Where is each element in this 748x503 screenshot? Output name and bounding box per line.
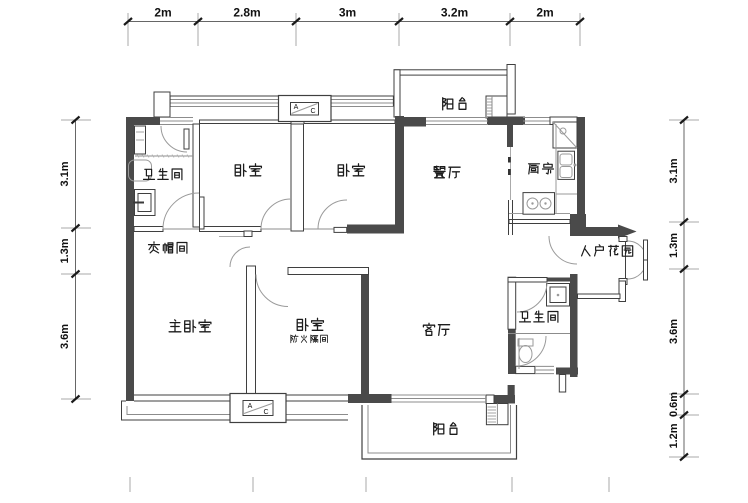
svg-text:2m: 2m: [154, 6, 171, 20]
svg-text:2.8m: 2.8m: [233, 6, 260, 20]
svg-text:3m: 3m: [339, 6, 356, 20]
svg-text:1.3m: 1.3m: [59, 238, 71, 263]
svg-text:2m: 2m: [536, 6, 553, 20]
svg-text:0.6m: 0.6m: [668, 392, 680, 417]
svg-text:A: A: [294, 104, 299, 111]
svg-text:3.2m: 3.2m: [441, 6, 468, 20]
svg-text:3.6m: 3.6m: [59, 324, 71, 349]
svg-text:A: A: [248, 403, 253, 410]
svg-text:3.1m: 3.1m: [668, 158, 680, 183]
svg-text:3.6m: 3.6m: [668, 319, 680, 344]
svg-text:C: C: [310, 108, 315, 115]
svg-text:C: C: [263, 409, 268, 416]
svg-text:1.3m: 1.3m: [668, 233, 680, 258]
svg-text:3.1m: 3.1m: [59, 161, 71, 186]
svg-text:1.2m: 1.2m: [668, 423, 680, 448]
